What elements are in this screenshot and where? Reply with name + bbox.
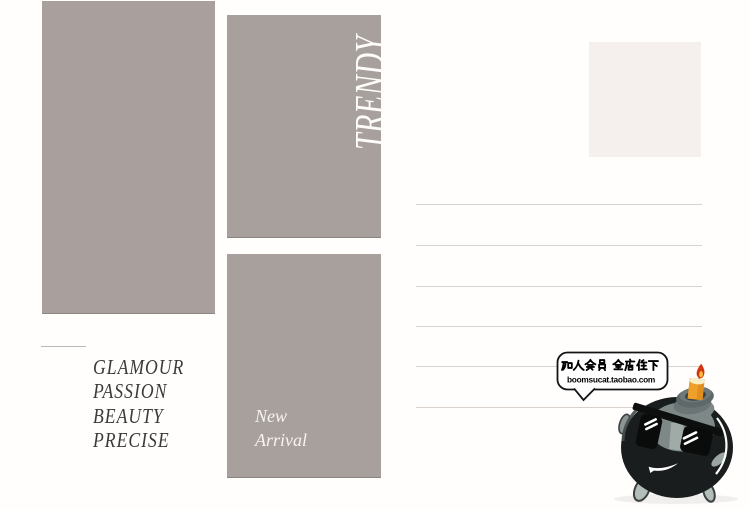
svg-text:boomsucat.taobao.com: boomsucat.taobao.com [567, 375, 655, 385]
